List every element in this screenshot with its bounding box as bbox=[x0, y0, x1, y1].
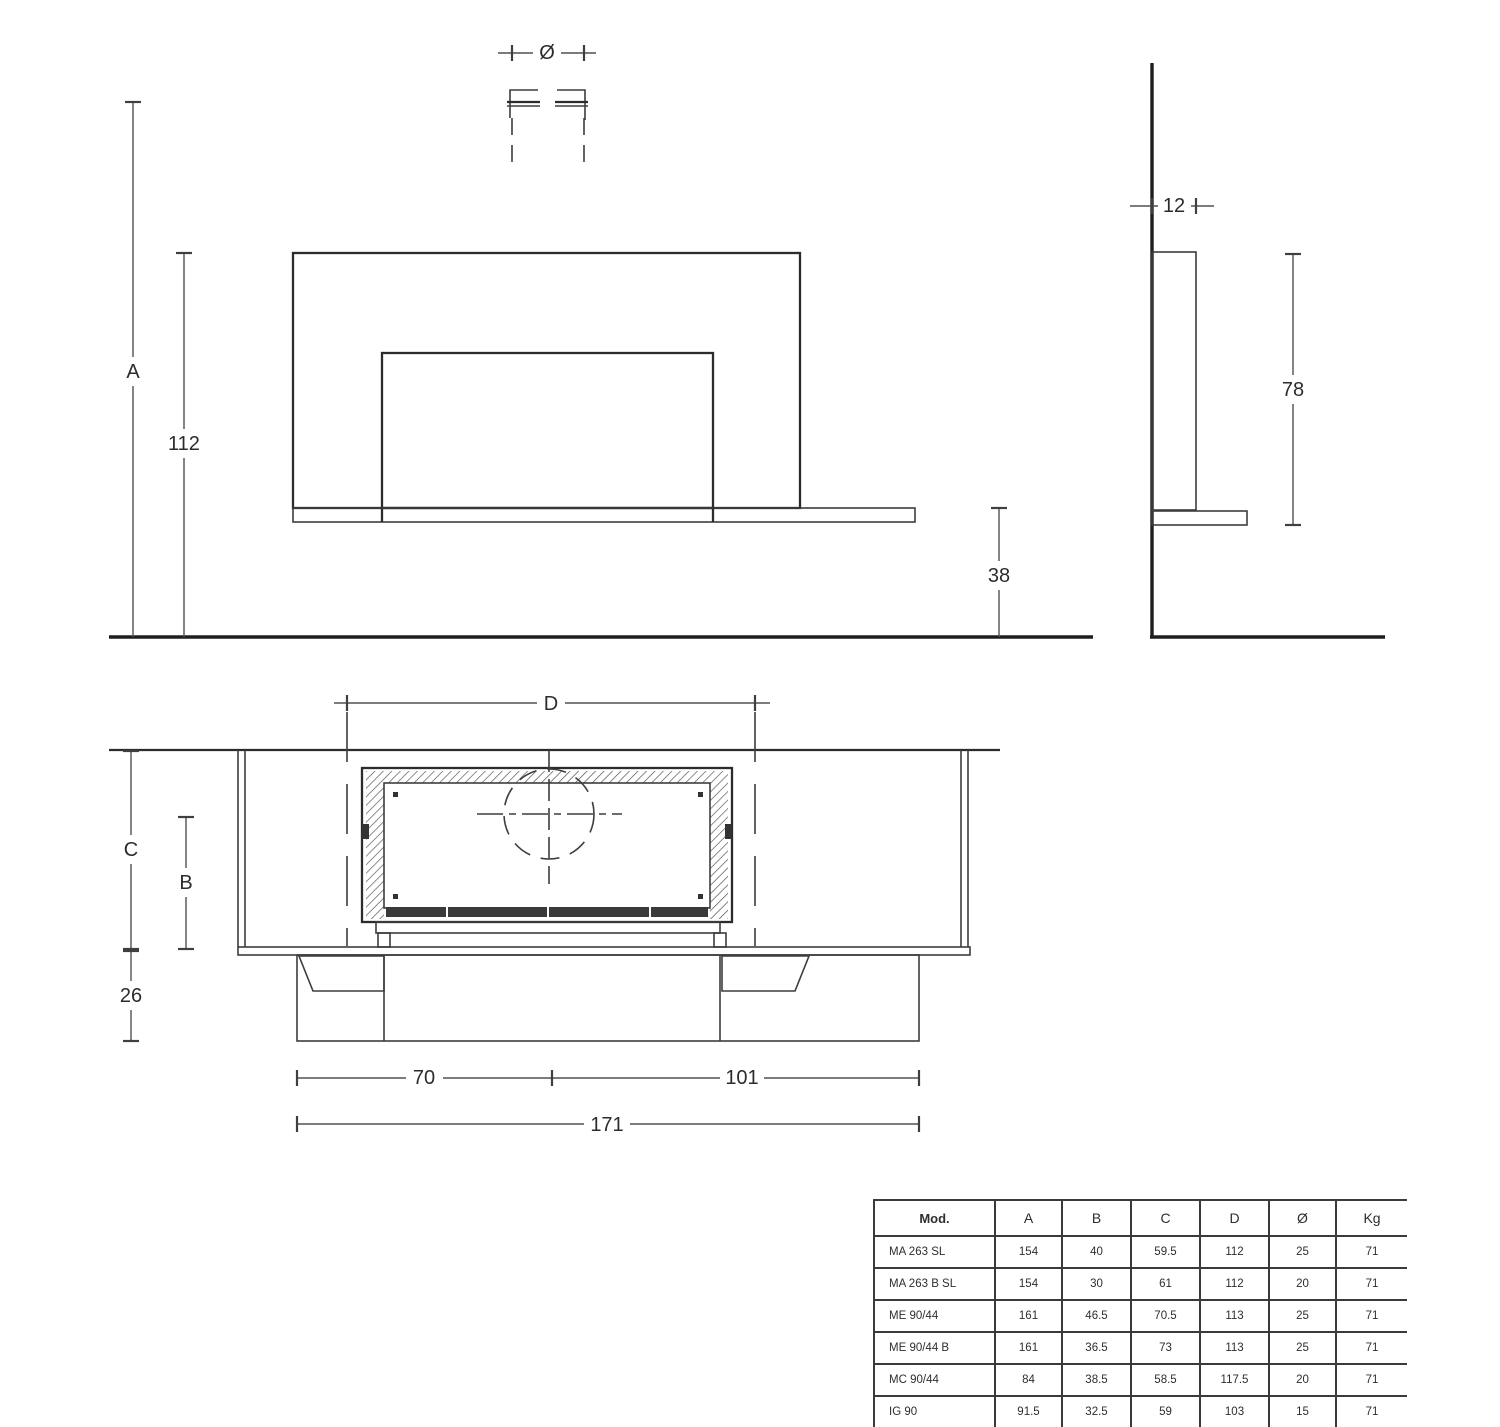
model-name: MC 90/44 bbox=[874, 1364, 995, 1396]
table-row: MA 263 SL 154 40 59.5 112 25 71 bbox=[874, 1236, 1407, 1268]
dim-label-112: 112 bbox=[168, 433, 200, 455]
dim-171: 171 bbox=[297, 1110, 919, 1139]
hood-outline bbox=[293, 253, 800, 508]
dim-label-171: 171 bbox=[590, 1114, 623, 1136]
dim-label-38: 38 bbox=[988, 565, 1010, 587]
table-row: ME 90/44 161 46.5 70.5 113 25 71 bbox=[874, 1300, 1407, 1332]
fireplace-dimension-sheet: Ø A 112 38 bbox=[0, 0, 1500, 1427]
model-name: MA 263 B SL bbox=[874, 1268, 995, 1300]
dim-d: D bbox=[334, 689, 770, 718]
side-shelf bbox=[1152, 511, 1247, 525]
side-view: 12 78 bbox=[1130, 63, 1385, 638]
dim-26: 26 bbox=[114, 951, 149, 1041]
dim-label-78: 78 bbox=[1282, 379, 1304, 401]
firebox-glass bbox=[384, 783, 710, 908]
dim-label-101: 101 bbox=[725, 1067, 758, 1089]
header-diameter: Ø bbox=[1269, 1200, 1336, 1236]
dim-label-b: B bbox=[179, 872, 192, 894]
dim-label-26: 26 bbox=[120, 985, 142, 1007]
air-vent-right bbox=[722, 956, 809, 991]
dim-label-diameter: Ø bbox=[539, 42, 555, 64]
flue-pipe bbox=[507, 90, 588, 162]
front-view: Ø A 112 38 bbox=[109, 39, 1093, 637]
section-view: D C B 26 bbox=[109, 689, 1000, 1139]
header-d: D bbox=[1200, 1200, 1269, 1236]
header-mod: Mod. bbox=[874, 1200, 995, 1236]
side-panel bbox=[1152, 252, 1196, 510]
model-name: MA 263 SL bbox=[874, 1236, 995, 1268]
bench-shelf bbox=[293, 508, 915, 522]
flue-circle bbox=[477, 750, 622, 884]
dim-label-a: A bbox=[126, 361, 140, 383]
dim-38: 38 bbox=[982, 508, 1016, 637]
table-row: MC 90/44 84 38.5 58.5 117.5 20 71 bbox=[874, 1364, 1407, 1396]
table-row-partial: IG 90 91.5 32.5 59 103 15 71 bbox=[874, 1396, 1407, 1427]
dim-label-d: D bbox=[544, 693, 558, 715]
model-name: ME 90/44 B bbox=[874, 1332, 995, 1364]
dim-label-12: 12 bbox=[1163, 195, 1185, 217]
dim-b: B bbox=[172, 817, 200, 949]
dim-70-101: 70 101 bbox=[297, 1063, 919, 1092]
table-row: ME 90/44 B 161 36.5 73 113 25 71 bbox=[874, 1332, 1407, 1364]
section-bench-slab bbox=[238, 947, 970, 955]
spec-table: Mod. A B C D Ø Kg MA 263 SL 154 40 59.5 … bbox=[873, 1199, 1407, 1427]
header-b: B bbox=[1062, 1200, 1131, 1236]
air-vent-left bbox=[299, 956, 384, 991]
dim-c: C bbox=[117, 751, 145, 949]
firebox-front-outline bbox=[382, 353, 713, 508]
dim-112: 112 bbox=[162, 253, 205, 637]
dim-flue-diameter: Ø bbox=[498, 39, 596, 66]
dim-label-70: 70 bbox=[413, 1067, 435, 1089]
model-name: ME 90/44 bbox=[874, 1300, 995, 1332]
header-a: A bbox=[995, 1200, 1062, 1236]
dim-label-c: C bbox=[124, 839, 138, 861]
firebox-section bbox=[362, 768, 732, 947]
spec-table-container: Mod. A B C D Ø Kg MA 263 SL 154 40 59.5 … bbox=[873, 1199, 1407, 1427]
dim-78: 78 bbox=[1275, 254, 1311, 525]
header-kg: Kg bbox=[1336, 1200, 1407, 1236]
header-c: C bbox=[1131, 1200, 1200, 1236]
model-name: IG 90 bbox=[874, 1396, 995, 1427]
base-plinth bbox=[297, 955, 919, 1041]
dim-12: 12 bbox=[1130, 192, 1214, 220]
table-row: MA 263 B SL 154 30 61 112 20 71 bbox=[874, 1268, 1407, 1300]
dim-a: A bbox=[119, 102, 146, 637]
spec-header-row: Mod. A B C D Ø Kg bbox=[874, 1200, 1407, 1236]
